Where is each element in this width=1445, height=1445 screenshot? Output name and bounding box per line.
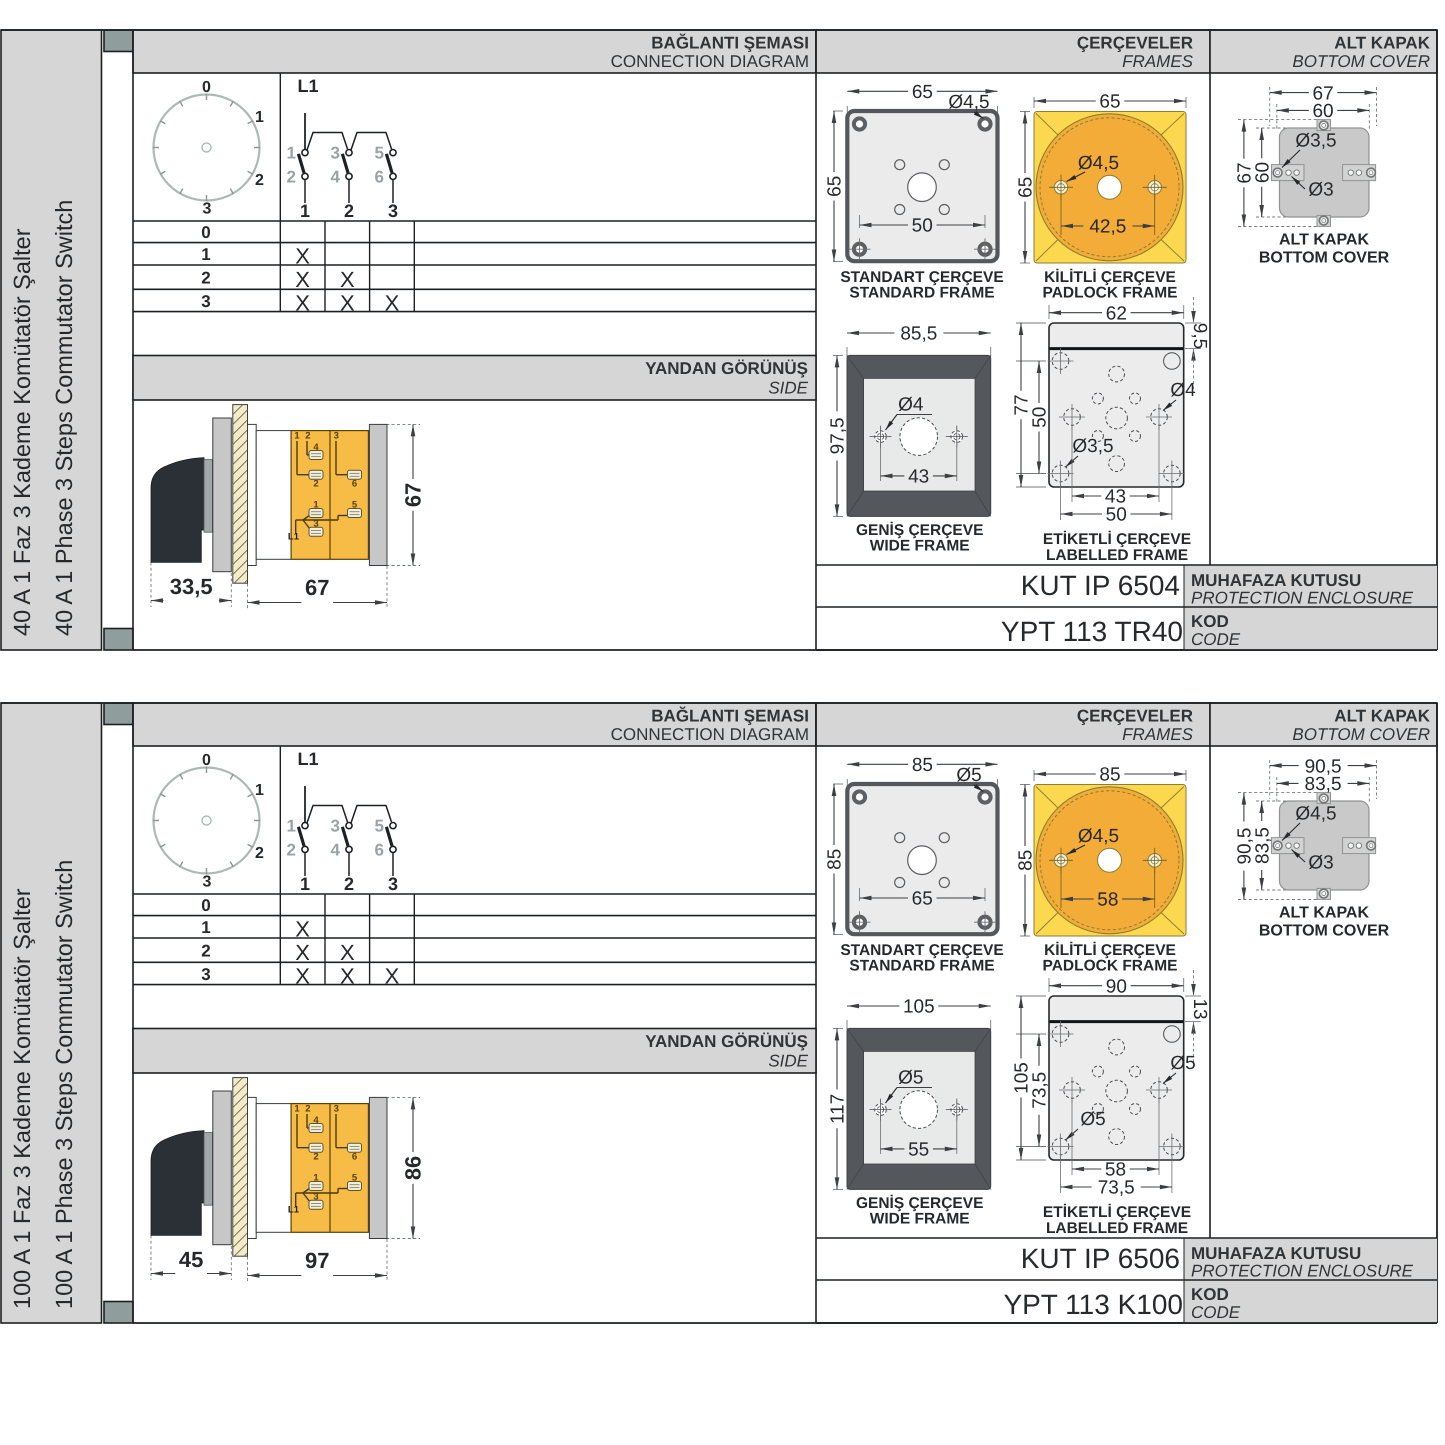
svg-text:67: 67 [401,483,426,507]
svg-text:CODE: CODE [1191,1303,1241,1322]
svg-text:ÇERÇEVELER: ÇERÇEVELER [1077,707,1193,726]
svg-text:6: 6 [375,168,384,187]
svg-text:6: 6 [352,479,357,490]
svg-text:33,5: 33,5 [170,574,213,599]
svg-text:4: 4 [313,442,319,453]
svg-text:85: 85 [1099,765,1120,786]
svg-text:BAĞLANTI ŞEMASI: BAĞLANTI ŞEMASI [651,706,809,726]
svg-text:1: 1 [300,874,310,894]
svg-text:2: 2 [287,841,296,860]
svg-text:1: 1 [201,245,210,264]
svg-text:97,5: 97,5 [828,417,849,454]
svg-text:X: X [295,290,310,315]
svg-text:3: 3 [313,518,318,529]
svg-text:1: 1 [300,201,310,221]
svg-text:5: 5 [375,817,384,836]
svg-text:CODE: CODE [1191,630,1241,649]
svg-text:BOTTOM COVER: BOTTOM COVER [1292,52,1430,71]
svg-text:43: 43 [908,467,929,488]
svg-text:40 A 1 Faz 3 Kademe Komütatör: 40 A 1 Faz 3 Kademe Komütatör Şalter [9,228,35,636]
svg-text:40 A 1 Phase 3 Steps Commutato: 40 A 1 Phase 3 Steps Commutator Switch [51,200,77,636]
svg-text:2: 2 [313,479,318,490]
svg-text:KOD: KOD [1191,612,1229,631]
svg-text:1: 1 [294,1104,300,1115]
svg-text:L1: L1 [297,749,318,769]
svg-text:67: 67 [305,575,329,600]
svg-text:2: 2 [305,431,310,442]
svg-text:GENİŞ ÇERÇEVE: GENİŞ ÇERÇEVE [856,521,983,539]
svg-text:3: 3 [201,965,210,984]
svg-text:90: 90 [1106,976,1127,997]
svg-text:Ø5: Ø5 [956,765,981,786]
svg-text:CONNECTION DIAGRAM: CONNECTION DIAGRAM [611,52,809,71]
svg-text:PROTECTION ENCLOSURE: PROTECTION ENCLOSURE [1191,589,1414,608]
svg-text:3: 3 [331,817,340,836]
svg-text:1: 1 [287,817,296,836]
svg-text:X: X [295,244,310,269]
svg-text:LABELLED FRAME: LABELLED FRAME [1046,1220,1188,1237]
svg-text:L1: L1 [297,76,318,96]
svg-text:97: 97 [305,1248,329,1273]
svg-text:2: 2 [313,1152,318,1163]
svg-text:5: 5 [352,1173,358,1184]
svg-text:CONNECTION DIAGRAM: CONNECTION DIAGRAM [611,725,809,744]
svg-text:Ø5: Ø5 [1170,1053,1195,1074]
svg-text:ALT KAPAK: ALT KAPAK [1279,232,1370,249]
svg-text:X: X [295,917,310,942]
svg-text:FRAMES: FRAMES [1122,725,1194,744]
svg-text:50: 50 [1106,505,1127,526]
svg-text:SIDE: SIDE [768,379,808,398]
svg-text:2: 2 [344,874,354,894]
svg-text:3: 3 [334,1104,339,1115]
svg-text:ETİKETLİ ÇERÇEVE: ETİKETLİ ÇERÇEVE [1043,1203,1191,1221]
svg-text:62: 62 [1106,303,1127,324]
svg-text:Ø4,5: Ø4,5 [1078,826,1119,847]
svg-text:STANDARD FRAME: STANDARD FRAME [849,285,994,302]
svg-text:100 A 1 Phase 3 Steps Commutat: 100 A 1 Phase 3 Steps Commutator Switch [51,860,77,1309]
svg-text:55: 55 [908,1140,929,1161]
svg-text:83,5: 83,5 [1305,774,1342,795]
svg-text:65: 65 [912,82,933,103]
svg-text:L1: L1 [288,532,300,543]
svg-text:ALT KAPAK: ALT KAPAK [1279,905,1370,922]
svg-text:X: X [340,290,355,315]
svg-text:100 A 1 Faz 3 Kademe Komütatör: 100 A 1 Faz 3 Kademe Komütatör Şalter [9,888,35,1309]
svg-text:BOTTOM COVER: BOTTOM COVER [1259,923,1390,940]
svg-text:117: 117 [828,1094,849,1124]
svg-text:73,5: 73,5 [1030,1072,1051,1109]
svg-text:6: 6 [352,1152,357,1163]
svg-text:FRAMES: FRAMES [1122,52,1194,71]
svg-text:1: 1 [294,431,300,442]
svg-text:YANDAN GÖRÜNÜŞ: YANDAN GÖRÜNÜŞ [645,1032,808,1051]
svg-text:3: 3 [313,1191,318,1202]
svg-text:45: 45 [179,1247,203,1272]
svg-text:85: 85 [912,755,933,776]
svg-text:X: X [340,963,355,988]
svg-text:3: 3 [388,201,398,221]
svg-text:73,5: 73,5 [1098,1178,1135,1199]
svg-text:WIDE FRAME: WIDE FRAME [870,538,970,555]
svg-text:2: 2 [201,269,210,288]
svg-text:0: 0 [201,223,210,242]
svg-text:Ø4: Ø4 [1170,380,1196,401]
svg-text:KİLİTLİ ÇERÇEVE: KİLİTLİ ÇERÇEVE [1044,268,1176,286]
svg-text:4: 4 [313,1115,319,1126]
svg-text:0: 0 [202,752,211,769]
svg-text:KUT IP 6506: KUT IP 6506 [1021,1243,1180,1274]
svg-text:6: 6 [375,841,384,860]
svg-text:Ø3,5: Ø3,5 [1072,436,1113,457]
svg-text:5: 5 [352,500,358,511]
svg-text:Ø5: Ø5 [898,1068,923,1089]
svg-text:Ø4,5: Ø4,5 [1295,804,1336,825]
svg-text:GENİŞ ÇERÇEVE: GENİŞ ÇERÇEVE [856,1194,983,1212]
svg-text:Ø3: Ø3 [1308,180,1333,201]
svg-text:3: 3 [201,292,210,311]
svg-text:13: 13 [1189,998,1210,1019]
svg-text:1: 1 [201,918,210,937]
svg-text:5: 5 [375,144,384,163]
svg-text:X: X [295,940,310,965]
svg-text:60: 60 [1312,101,1333,122]
svg-text:L1: L1 [288,1205,300,1216]
svg-text:85: 85 [1016,850,1037,871]
svg-text:4: 4 [331,841,341,860]
svg-text:42,5: 42,5 [1089,217,1126,238]
svg-text:ETİKETLİ ÇERÇEVE: ETİKETLİ ÇERÇEVE [1043,530,1191,548]
svg-text:65: 65 [1099,92,1120,113]
svg-text:Ø5: Ø5 [1080,1109,1105,1130]
svg-text:X: X [340,267,355,292]
svg-text:9,5: 9,5 [1189,323,1210,349]
svg-text:105: 105 [903,997,935,1018]
svg-text:85: 85 [825,849,846,870]
svg-text:YANDAN GÖRÜNÜŞ: YANDAN GÖRÜNÜŞ [645,359,808,378]
svg-text:86: 86 [401,1156,426,1180]
svg-text:65: 65 [912,889,933,910]
svg-text:1: 1 [313,1173,319,1184]
svg-text:3: 3 [203,201,212,218]
svg-text:KİLİTLİ ÇERÇEVE: KİLİTLİ ÇERÇEVE [1044,941,1176,959]
svg-text:3: 3 [203,874,212,891]
svg-text:SIDE: SIDE [768,1052,808,1071]
svg-text:3: 3 [334,431,339,442]
svg-text:2: 2 [287,168,296,187]
svg-text:MUHAFAZA KUTUSU: MUHAFAZA KUTUSU [1191,1244,1361,1263]
svg-text:2: 2 [201,942,210,961]
svg-text:BOTTOM COVER: BOTTOM COVER [1292,725,1430,744]
svg-text:2: 2 [305,1104,310,1115]
svg-text:2: 2 [344,201,354,221]
svg-text:60: 60 [1252,162,1273,183]
svg-text:2: 2 [255,845,264,862]
svg-text:3: 3 [388,874,398,894]
svg-text:YPT 113 TR40: YPT 113 TR40 [1001,616,1183,647]
svg-text:LABELLED FRAME: LABELLED FRAME [1046,547,1188,564]
svg-text:ALT KAPAK: ALT KAPAK [1334,707,1430,726]
svg-text:PADLOCK FRAME: PADLOCK FRAME [1043,285,1178,302]
svg-text:X: X [340,940,355,965]
svg-text:KOD: KOD [1191,1285,1229,1304]
svg-text:MUHAFAZA KUTUSU: MUHAFAZA KUTUSU [1191,571,1361,590]
svg-text:BAĞLANTI ŞEMASI: BAĞLANTI ŞEMASI [651,33,809,53]
svg-text:ALT KAPAK: ALT KAPAK [1334,34,1430,53]
svg-text:1: 1 [255,109,264,126]
svg-text:WIDE FRAME: WIDE FRAME [870,1211,970,1228]
svg-text:58: 58 [1097,890,1118,911]
svg-text:X: X [295,267,310,292]
svg-text:0: 0 [201,896,210,915]
svg-text:STANDART ÇERÇEVE: STANDART ÇERÇEVE [840,269,1003,286]
svg-text:ÇERÇEVELER: ÇERÇEVELER [1077,34,1193,53]
svg-text:85,5: 85,5 [900,324,937,345]
svg-text:STANDARD FRAME: STANDARD FRAME [849,958,994,975]
svg-text:YPT 113 K100: YPT 113 K100 [1003,1289,1183,1320]
svg-text:50: 50 [912,216,933,237]
svg-text:0: 0 [202,79,211,96]
svg-text:X: X [385,963,400,988]
svg-text:Ø4,5: Ø4,5 [1078,153,1119,174]
svg-text:1: 1 [287,144,296,163]
svg-text:Ø3,5: Ø3,5 [1295,131,1336,152]
svg-text:KUT IP 6504: KUT IP 6504 [1021,570,1180,601]
svg-text:2: 2 [255,172,264,189]
svg-text:1: 1 [313,500,319,511]
svg-text:PADLOCK FRAME: PADLOCK FRAME [1043,958,1178,975]
svg-text:X: X [295,963,310,988]
svg-text:83,5: 83,5 [1252,827,1273,864]
svg-text:65: 65 [1016,177,1037,198]
svg-text:Ø4,5: Ø4,5 [948,92,989,113]
svg-text:BOTTOM COVER: BOTTOM COVER [1259,250,1390,267]
svg-text:4: 4 [331,168,341,187]
svg-text:X: X [385,290,400,315]
svg-text:65: 65 [825,176,846,197]
svg-text:1: 1 [255,782,264,799]
svg-text:Ø3: Ø3 [1308,853,1333,874]
svg-text:50: 50 [1030,407,1051,428]
svg-text:STANDART ÇERÇEVE: STANDART ÇERÇEVE [840,942,1003,959]
svg-text:PROTECTION ENCLOSURE: PROTECTION ENCLOSURE [1191,1262,1414,1281]
svg-text:Ø4: Ø4 [898,395,924,416]
svg-text:3: 3 [331,144,340,163]
